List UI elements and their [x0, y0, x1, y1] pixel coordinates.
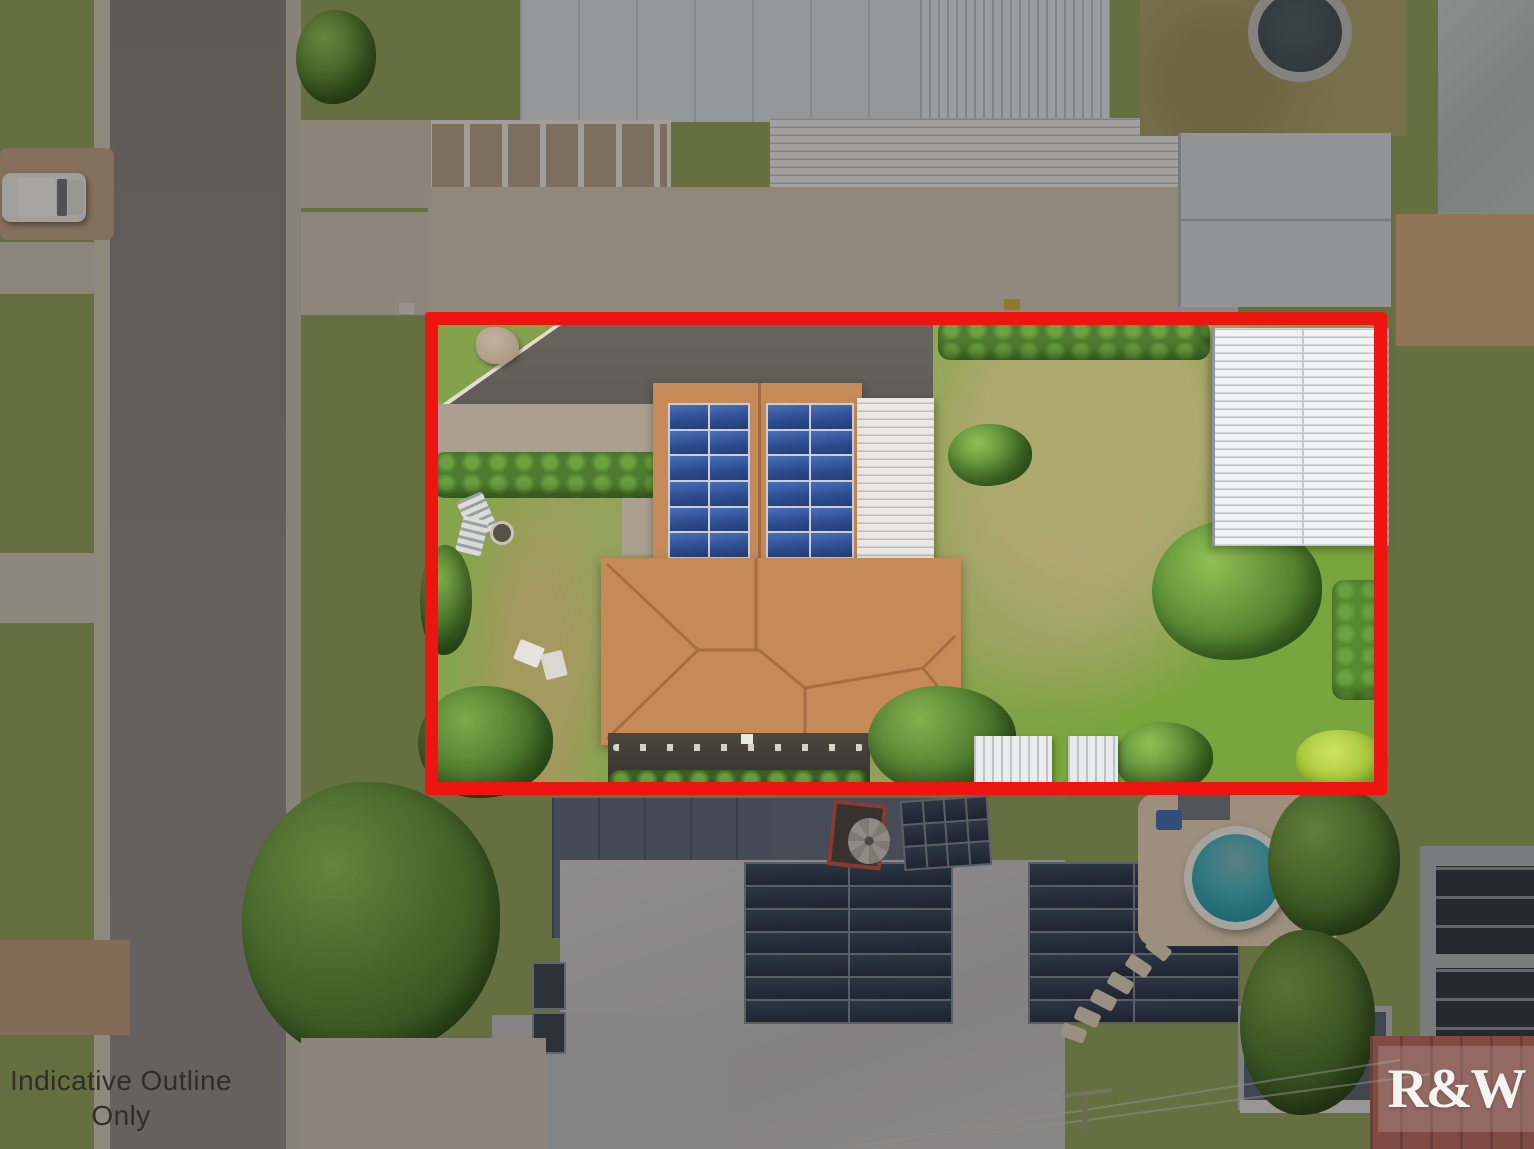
car-roof [18, 178, 56, 217]
crossover-left-top [0, 242, 95, 294]
solar-panel-cell [850, 887, 952, 908]
crossover-left-mid [0, 553, 95, 623]
solar-panel-cell [925, 823, 946, 845]
south-solar-array-1 [744, 862, 953, 1024]
disclaimer-line-2: Only [0, 1099, 242, 1134]
stepping-stone [1144, 936, 1172, 962]
solar-panel-cell [746, 978, 848, 999]
car-windshield [57, 179, 67, 216]
satellite-dish [848, 818, 890, 864]
pool-water [1192, 834, 1280, 922]
solar-panel-cell [850, 1001, 952, 1022]
car-hood [68, 180, 84, 215]
solar-panel-cell [746, 955, 848, 976]
north-forecourt [428, 187, 1238, 315]
dirt-path-bottom-left [0, 940, 130, 1035]
solar-panel-cell [968, 820, 989, 842]
solar-panel-cell [850, 978, 952, 999]
solar-panel-cell [905, 847, 926, 869]
solar-panel-cell [746, 910, 848, 931]
utility-pit [399, 303, 414, 314]
north-house-roof-right [920, 0, 1110, 122]
solar-panel-cell [1030, 887, 1133, 908]
solar-panel-cell [966, 797, 987, 819]
crossover-north [301, 120, 431, 208]
solar-panel-cell [902, 802, 923, 824]
far-right-house-roof [1438, 0, 1534, 214]
pool-shade-structure [1178, 794, 1230, 820]
crossover-subject [301, 212, 431, 315]
south-skylight-1 [532, 962, 566, 1010]
solar-panel-cell [903, 824, 924, 846]
solar-panel-cell [850, 910, 952, 931]
solar-panel-cell [746, 1001, 848, 1022]
solar-panel-cell [1030, 864, 1133, 885]
northeast-shed-roof [1178, 133, 1391, 307]
stepping-stones [1058, 938, 1176, 1044]
solar-panel-cell [850, 955, 952, 976]
pool-pump-box [1156, 810, 1182, 830]
north-pergola [428, 120, 671, 195]
solar-panel-cell [969, 842, 990, 864]
solar-panel-cell [926, 845, 947, 867]
letterbox-marker [1004, 299, 1020, 310]
stepping-stone [1124, 953, 1153, 979]
solar-panel-cell [946, 821, 967, 843]
southeast-solar-band-1 [1436, 866, 1534, 954]
property-boundary-outline [425, 312, 1387, 795]
tree-verge-top [296, 10, 376, 104]
disclaimer-line-1: Indicative Outline [0, 1064, 242, 1099]
stepping-stone [1073, 1006, 1102, 1029]
solar-panel-cell [1030, 910, 1133, 931]
south-solar-small [900, 795, 993, 871]
solar-panel-cell [746, 933, 848, 954]
solar-panel-cell [746, 887, 848, 908]
stepping-stone [1089, 988, 1118, 1012]
parked-car [2, 173, 86, 222]
far-right-dirt [1396, 214, 1534, 346]
solar-panel-cell [746, 864, 848, 885]
crossover-south [301, 1038, 546, 1149]
north-house-roof [520, 0, 920, 122]
solar-panel-cell [948, 844, 969, 866]
palm-cluster-upper [1268, 786, 1400, 936]
solar-panel-cell [923, 800, 944, 822]
big-street-tree [242, 782, 500, 1060]
stepping-stone [1106, 971, 1135, 996]
disclaimer-text: Indicative Outline Only [0, 1064, 242, 1133]
agency-watermark: R&W [1378, 1046, 1534, 1132]
solar-panel-cell [850, 933, 952, 954]
aerial-property-photo: Indicative Outline Only R&W [0, 0, 1534, 1149]
solar-panel-cell [945, 799, 966, 821]
agency-logo-text: R&W [1387, 1057, 1524, 1121]
